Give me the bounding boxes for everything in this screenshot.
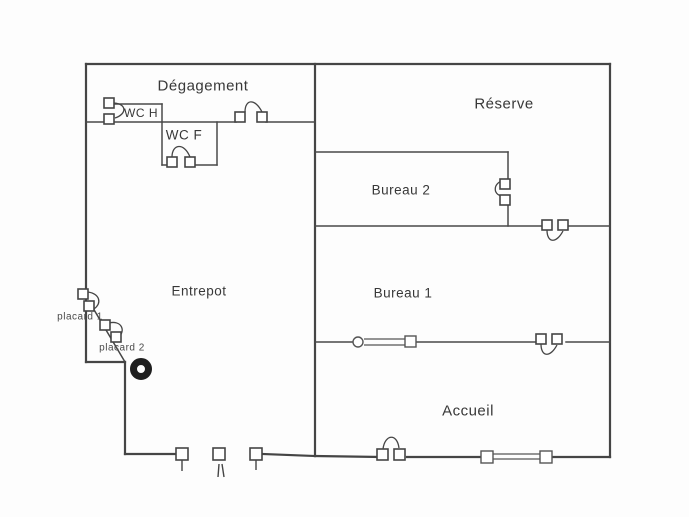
door-icon-reserve-bureau1 bbox=[542, 220, 568, 240]
door-icon-placard2 bbox=[100, 320, 122, 342]
room-label-placard1: placard 1 bbox=[57, 312, 103, 323]
room-label-degagement: Dégagement bbox=[158, 78, 249, 95]
wall-bottom-left-b bbox=[262, 454, 315, 456]
entrance-posts bbox=[176, 448, 262, 477]
post-icon bbox=[213, 448, 225, 460]
door-icon-bureau2 bbox=[495, 179, 510, 205]
column-icon bbox=[134, 362, 149, 377]
room-label-wc-h: WC H bbox=[124, 106, 158, 120]
floor-plan-drawing bbox=[0, 0, 689, 517]
room-label-accueil: Accueil bbox=[442, 403, 494, 420]
room-label-placard2: placard 2 bbox=[99, 343, 145, 354]
room-label-bureau2: Bureau 2 bbox=[372, 183, 431, 198]
door-icon-accueil-entry bbox=[377, 437, 405, 460]
room-label-entrepot: Entrepot bbox=[171, 284, 226, 299]
post-icon bbox=[250, 448, 262, 460]
door-leaf-tick-middle bbox=[218, 464, 224, 477]
room-label-bureau1: Bureau 1 bbox=[374, 286, 433, 301]
door-icon-wc-f bbox=[167, 146, 195, 167]
floor-plan: Dégagement Réserve WC H WC F Bureau 2 Bu… bbox=[0, 0, 689, 517]
door-icon-wc-h bbox=[104, 98, 124, 124]
interior-walls bbox=[86, 104, 610, 342]
door-icon-degagement bbox=[235, 102, 267, 122]
window-icon-bureau1 bbox=[353, 336, 416, 347]
room-label-reserve: Réserve bbox=[474, 96, 533, 113]
door-icon-placard1 bbox=[78, 289, 99, 311]
windows bbox=[353, 336, 552, 463]
window-icon-accueil bbox=[481, 451, 552, 463]
room-label-wc-f: WC F bbox=[166, 128, 203, 143]
door-icon-bureau1-accueil bbox=[536, 334, 562, 354]
walls bbox=[86, 64, 610, 457]
wall-bottom-right-a bbox=[315, 456, 380, 457]
post-icon bbox=[176, 448, 188, 460]
